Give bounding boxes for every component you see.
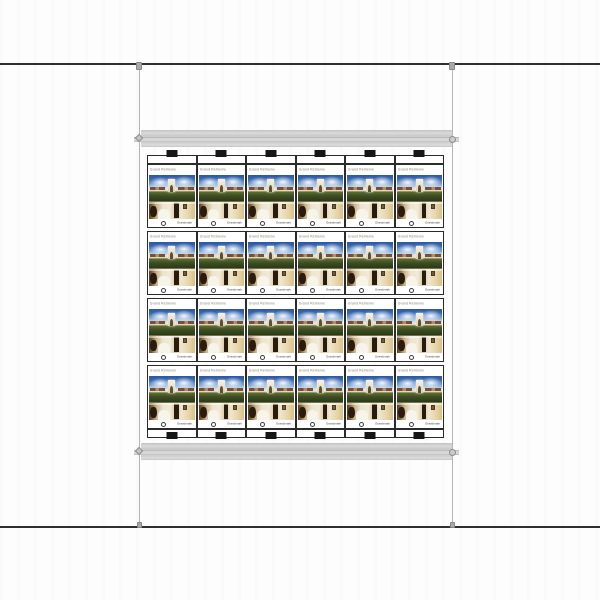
interior-photo	[298, 202, 344, 219]
white-bed	[158, 276, 170, 286]
building-arch-tower	[366, 380, 373, 393]
white-bed	[406, 410, 418, 420]
card-title: Grand Retirement Village	[297, 167, 325, 173]
white-bed	[356, 343, 368, 353]
cloud	[222, 377, 244, 389]
logo-mark-icon	[359, 355, 364, 360]
wall-frame	[381, 405, 385, 410]
postcard[interactable]: Grand Retirement VillageGrandmark	[395, 365, 445, 429]
logo-mark-icon	[409, 355, 414, 360]
exterior-photo	[298, 309, 344, 336]
card-logo: Grandmark	[396, 219, 444, 227]
card-logo: Grandmark	[297, 353, 345, 361]
cloud	[371, 310, 393, 322]
building-arch-tower	[267, 313, 274, 326]
logo-text: Grandmark	[425, 221, 440, 225]
card-logo: Grandmark	[247, 219, 295, 227]
guide-handle-top-left[interactable]	[136, 62, 142, 70]
interior-photo	[347, 403, 393, 420]
card-title: Grand Retirement Village	[346, 234, 374, 240]
logo-text: Grandmark	[276, 221, 291, 225]
building-arch-tower	[366, 179, 373, 192]
card-column[interactable]: Grand Retirement VillageGrandmarkGrand R…	[395, 155, 445, 438]
dark-furniture	[150, 407, 157, 418]
postcard[interactable]: Grand Retirement VillageGrandmark	[147, 164, 197, 228]
postcard[interactable]: Grand Retirement VillageGrandmark	[246, 164, 296, 228]
exterior-photo	[347, 175, 393, 202]
building-arch-tower	[168, 313, 175, 326]
dark-furniture	[348, 273, 355, 284]
logo-text: Grandmark	[326, 355, 341, 359]
card-logo: Grandmark	[148, 353, 196, 361]
dark-cabinet	[372, 337, 376, 352]
card-logo: Grandmark	[198, 353, 246, 361]
building-arch-tower	[416, 179, 423, 192]
card-title: Grand Retirement Village	[396, 167, 424, 173]
logo-mark-icon	[211, 221, 216, 226]
card-title: Grand Retirement Village	[346, 167, 374, 173]
logo-text: Grandmark	[177, 355, 192, 359]
exterior-photo	[347, 376, 393, 403]
horizontal-rule-bottom[interactable]	[0, 526, 600, 528]
logo-mark-icon	[161, 288, 166, 293]
wall-frame	[431, 338, 435, 343]
logo-text: Grandmark	[375, 221, 390, 225]
building-arch-tower	[267, 179, 274, 192]
card-logo: Grandmark	[346, 219, 394, 227]
wall-frame	[183, 204, 187, 209]
interior-photo	[248, 336, 294, 353]
cloud	[371, 243, 393, 255]
card-logo: Grandmark	[396, 353, 444, 361]
card-title: Grand Retirement Village	[297, 301, 325, 307]
dark-cabinet	[323, 404, 327, 419]
logo-text: Grandmark	[425, 422, 440, 426]
editor-canvas: Grand Retirement VillageGrandmarkGrand R…	[0, 0, 600, 600]
logo-mark-icon	[211, 355, 216, 360]
registration-tab-bottom	[216, 432, 227, 439]
card-logo: Grandmark	[198, 420, 246, 428]
dark-furniture	[150, 273, 157, 284]
wall-frame	[332, 204, 336, 209]
cloud	[321, 176, 343, 188]
postcard[interactable]: Grand Retirement VillageGrandmark	[246, 231, 296, 295]
logo-mark-icon	[161, 422, 166, 427]
interior-photo	[149, 269, 195, 286]
exterior-photo	[248, 376, 294, 403]
card-title: Grand Retirement Village	[148, 167, 176, 173]
exterior-photo	[199, 242, 245, 269]
cloud	[272, 243, 294, 255]
dark-furniture	[200, 273, 207, 284]
card-title: Grand Retirement Village	[247, 368, 275, 374]
postcard[interactable]: Grand Retirement VillageGrandmark	[345, 365, 395, 429]
dark-cabinet	[224, 337, 228, 352]
exterior-photo	[298, 376, 344, 403]
white-bed	[406, 209, 418, 219]
postcard[interactable]: Grand Retirement VillageGrandmark	[197, 164, 247, 228]
building-arch-tower	[267, 380, 274, 393]
exterior-photo	[298, 242, 344, 269]
card-logo: Grandmark	[297, 219, 345, 227]
logo-mark-icon	[260, 355, 265, 360]
exterior-photo	[248, 242, 294, 269]
white-bed	[208, 410, 220, 420]
exterior-photo	[397, 309, 443, 336]
wall-frame	[282, 204, 286, 209]
interior-photo	[199, 202, 245, 219]
building-arch-tower	[218, 246, 225, 259]
postcard[interactable]: Grand Retirement VillageGrandmark	[147, 231, 197, 295]
white-bed	[158, 343, 170, 353]
postcard[interactable]: Grand Retirement VillageGrandmark	[395, 231, 445, 295]
card-title: Grand Retirement Village	[346, 301, 374, 307]
dark-cabinet	[224, 270, 228, 285]
white-bed	[257, 276, 269, 286]
dark-furniture	[398, 206, 405, 217]
exterior-photo	[397, 175, 443, 202]
registration-tab-bottom	[315, 432, 326, 439]
card-title: Grand Retirement Village	[297, 368, 325, 374]
logo-mark-icon	[260, 221, 265, 226]
building-arch-tower	[218, 380, 225, 393]
dark-cabinet	[422, 203, 426, 218]
interior-photo	[298, 403, 344, 420]
white-bed	[406, 276, 418, 286]
registration-tab-top	[315, 150, 326, 157]
card-logo: Grandmark	[247, 286, 295, 294]
postcard[interactable]: Grand Retirement VillageGrandmark	[147, 365, 197, 429]
exterior-photo	[149, 175, 195, 202]
dark-cabinet	[372, 404, 376, 419]
card-logo: Grandmark	[346, 353, 394, 361]
logo-mark-icon	[310, 355, 315, 360]
postcard[interactable]: Grand Retirement VillageGrandmark	[395, 164, 445, 228]
dark-cabinet	[323, 337, 327, 352]
card-column[interactable]: Grand Retirement VillageGrandmarkGrand R…	[246, 155, 296, 438]
dark-cabinet	[174, 337, 178, 352]
dark-cabinet	[273, 270, 277, 285]
white-bed	[307, 410, 319, 420]
postcard[interactable]: Grand Retirement VillageGrandmark	[345, 164, 395, 228]
vertical-guide-right[interactable]	[452, 64, 453, 527]
card-title: Grand Retirement Village	[247, 167, 275, 173]
card-title: Grand Retirement Village	[247, 301, 275, 307]
horizontal-rule-top[interactable]	[0, 63, 600, 65]
interior-photo	[347, 269, 393, 286]
registration-tab-bottom	[414, 432, 425, 439]
building-arch-tower	[317, 179, 324, 192]
building-arch-tower	[317, 246, 324, 259]
logo-text: Grandmark	[177, 288, 192, 292]
dark-furniture	[200, 340, 207, 351]
registration-tab-top	[414, 150, 425, 157]
exterior-photo	[397, 376, 443, 403]
card-column[interactable]: Grand Retirement VillageGrandmarkGrand R…	[296, 155, 346, 438]
exterior-photo	[199, 309, 245, 336]
card-logo: Grandmark	[346, 286, 394, 294]
white-bed	[406, 343, 418, 353]
cloud	[321, 310, 343, 322]
card-title: Grand Retirement Village	[297, 234, 325, 240]
interior-photo	[149, 336, 195, 353]
dark-cabinet	[174, 404, 178, 419]
white-bed	[307, 343, 319, 353]
building-arch-tower	[218, 179, 225, 192]
logo-mark-icon	[260, 288, 265, 293]
white-bed	[307, 276, 319, 286]
postcard[interactable]: Grand Retirement VillageGrandmark	[395, 298, 445, 362]
dark-cabinet	[422, 270, 426, 285]
interior-photo	[298, 269, 344, 286]
dark-furniture	[299, 340, 306, 351]
building-arch-tower	[366, 246, 373, 259]
logo-text: Grandmark	[375, 288, 390, 292]
card-title: Grand Retirement Village	[148, 234, 176, 240]
logo-mark-icon	[409, 221, 414, 226]
cloud	[222, 176, 244, 188]
card-column[interactable]: Grand Retirement VillageGrandmarkGrand R…	[197, 155, 247, 438]
dark-furniture	[200, 407, 207, 418]
card-title: Grand Retirement Village	[198, 234, 226, 240]
dark-furniture	[398, 273, 405, 284]
white-bed	[158, 209, 170, 219]
card-title: Grand Retirement Village	[198, 368, 226, 374]
postcard[interactable]: Grand Retirement VillageGrandmark	[246, 365, 296, 429]
dark-cabinet	[224, 404, 228, 419]
card-logo: Grandmark	[198, 286, 246, 294]
dark-furniture	[348, 407, 355, 418]
card-title: Grand Retirement Village	[396, 368, 424, 374]
postcard[interactable]: Grand Retirement VillageGrandmark	[296, 164, 346, 228]
dark-cabinet	[174, 270, 178, 285]
interior-photo	[199, 403, 245, 420]
interior-photo	[248, 403, 294, 420]
guide-handle-top-right[interactable]	[449, 62, 455, 70]
logo-mark-icon	[310, 288, 315, 293]
logo-text: Grandmark	[276, 288, 291, 292]
white-bed	[208, 343, 220, 353]
cloud	[173, 176, 195, 188]
building-arch-tower	[317, 380, 324, 393]
logo-text: Grandmark	[177, 422, 192, 426]
dark-furniture	[398, 407, 405, 418]
postcard[interactable]: Grand Retirement VillageGrandmark	[296, 298, 346, 362]
sheet-grid[interactable]: Grand Retirement VillageGrandmarkGrand R…	[147, 155, 444, 438]
postcard[interactable]: Grand Retirement VillageGrandmark	[296, 231, 346, 295]
logo-text: Grandmark	[227, 355, 242, 359]
cloud	[222, 243, 244, 255]
registration-tab-bottom	[265, 432, 276, 439]
white-bed	[356, 209, 368, 219]
hanger-rail-bottom-flange	[134, 450, 459, 455]
white-bed	[257, 209, 269, 219]
postcard[interactable]: Grand Retirement VillageGrandmark	[345, 298, 395, 362]
interior-photo	[347, 336, 393, 353]
dark-furniture	[299, 407, 306, 418]
building-arch-tower	[416, 313, 423, 326]
card-title: Grand Retirement Village	[247, 234, 275, 240]
dark-cabinet	[372, 203, 376, 218]
wall-frame	[233, 204, 237, 209]
interior-photo	[397, 336, 443, 353]
wall-frame	[233, 405, 237, 410]
card-column[interactable]: Grand Retirement VillageGrandmarkGrand R…	[345, 155, 395, 438]
wall-frame	[431, 204, 435, 209]
interior-photo	[248, 269, 294, 286]
dark-furniture	[200, 206, 207, 217]
card-logo: Grandmark	[247, 353, 295, 361]
hanger-rail-top-flange	[134, 137, 459, 142]
dark-furniture	[249, 206, 256, 217]
logo-mark-icon	[359, 288, 364, 293]
interior-photo	[298, 336, 344, 353]
postcard[interactable]: Grand Retirement VillageGrandmark	[197, 231, 247, 295]
card-logo: Grandmark	[148, 420, 196, 428]
card-column[interactable]: Grand Retirement VillageGrandmarkGrand R…	[147, 155, 197, 438]
cloud	[420, 310, 442, 322]
cloud	[420, 243, 442, 255]
logo-text: Grandmark	[425, 355, 440, 359]
registration-tab-top	[216, 150, 227, 157]
cloud	[371, 176, 393, 188]
dark-cabinet	[372, 270, 376, 285]
registration-tab-top	[265, 150, 276, 157]
card-logo: Grandmark	[396, 420, 444, 428]
dark-furniture	[348, 206, 355, 217]
card-logo: Grandmark	[148, 219, 196, 227]
interior-photo	[199, 269, 245, 286]
rail-end-handle-top-right[interactable]	[449, 136, 456, 143]
registration-tab-bottom	[166, 432, 177, 439]
cloud	[420, 377, 442, 389]
building-arch-tower	[267, 246, 274, 259]
wall-frame	[183, 405, 187, 410]
dark-furniture	[249, 340, 256, 351]
white-bed	[208, 276, 220, 286]
logo-text: Grandmark	[326, 288, 341, 292]
cloud	[173, 310, 195, 322]
card-logo: Grandmark	[198, 219, 246, 227]
white-bed	[257, 410, 269, 420]
card-logo: Grandmark	[346, 420, 394, 428]
dark-cabinet	[422, 404, 426, 419]
exterior-photo	[397, 242, 443, 269]
exterior-photo	[199, 175, 245, 202]
card-title: Grand Retirement Village	[148, 368, 176, 374]
postcard[interactable]: Grand Retirement VillageGrandmark	[246, 298, 296, 362]
dark-cabinet	[422, 337, 426, 352]
wall-frame	[183, 338, 187, 343]
building-arch-tower	[168, 179, 175, 192]
dark-furniture	[299, 206, 306, 217]
exterior-photo	[199, 376, 245, 403]
card-logo: Grandmark	[148, 286, 196, 294]
postcard[interactable]: Grand Retirement VillageGrandmark	[197, 365, 247, 429]
card-logo: Grandmark	[396, 286, 444, 294]
building-arch-tower	[416, 380, 423, 393]
cloud	[321, 243, 343, 255]
building-arch-tower	[317, 313, 324, 326]
wall-frame	[233, 338, 237, 343]
wall-frame	[282, 271, 286, 276]
wall-frame	[282, 338, 286, 343]
cloud	[173, 243, 195, 255]
logo-mark-icon	[359, 221, 364, 226]
card-title: Grand Retirement Village	[396, 301, 424, 307]
exterior-photo	[149, 376, 195, 403]
card-title: Grand Retirement Village	[198, 167, 226, 173]
cloud	[272, 310, 294, 322]
wall-frame	[381, 338, 385, 343]
logo-text: Grandmark	[326, 221, 341, 225]
building-arch-tower	[218, 313, 225, 326]
white-bed	[158, 410, 170, 420]
interior-photo	[397, 403, 443, 420]
logo-mark-icon	[359, 422, 364, 427]
wall-frame	[282, 405, 286, 410]
postcard[interactable]: Grand Retirement VillageGrandmark	[147, 298, 197, 362]
wall-frame	[381, 204, 385, 209]
white-bed	[307, 209, 319, 219]
cloud	[420, 176, 442, 188]
logo-text: Grandmark	[375, 422, 390, 426]
building-arch-tower	[168, 380, 175, 393]
rail-end-handle-bottom-right[interactable]	[449, 449, 456, 456]
dark-cabinet	[323, 203, 327, 218]
logo-mark-icon	[161, 355, 166, 360]
card-title: Grand Retirement Village	[346, 368, 374, 374]
dark-cabinet	[224, 203, 228, 218]
card-logo: Grandmark	[297, 420, 345, 428]
guide-handle-bottom-left[interactable]	[137, 522, 142, 528]
card-logo: Grandmark	[247, 420, 295, 428]
card-logo: Grandmark	[297, 286, 345, 294]
dark-furniture	[249, 273, 256, 284]
dark-cabinet	[273, 404, 277, 419]
white-bed	[356, 276, 368, 286]
cloud	[222, 310, 244, 322]
building-arch-tower	[168, 246, 175, 259]
postcard[interactable]: Grand Retirement VillageGrandmark	[345, 231, 395, 295]
white-bed	[208, 209, 220, 219]
postcard[interactable]: Grand Retirement VillageGrandmark	[296, 365, 346, 429]
postcard[interactable]: Grand Retirement VillageGrandmark	[197, 298, 247, 362]
registration-tab-top	[364, 150, 375, 157]
interior-photo	[199, 336, 245, 353]
white-bed	[356, 410, 368, 420]
exterior-photo	[248, 309, 294, 336]
cloud	[272, 176, 294, 188]
interior-photo	[397, 202, 443, 219]
dark-cabinet	[273, 203, 277, 218]
building-arch-tower	[366, 313, 373, 326]
guide-handle-bottom-right[interactable]	[450, 522, 455, 528]
wall-frame	[381, 271, 385, 276]
interior-photo	[149, 202, 195, 219]
cloud	[371, 377, 393, 389]
logo-text: Grandmark	[276, 355, 291, 359]
logo-text: Grandmark	[177, 221, 192, 225]
card-title: Grand Retirement Village	[148, 301, 176, 307]
registration-tab-bottom	[364, 432, 375, 439]
wall-frame	[431, 271, 435, 276]
wall-frame	[183, 271, 187, 276]
exterior-photo	[248, 175, 294, 202]
logo-mark-icon	[211, 422, 216, 427]
wall-frame	[233, 271, 237, 276]
wall-frame	[332, 405, 336, 410]
